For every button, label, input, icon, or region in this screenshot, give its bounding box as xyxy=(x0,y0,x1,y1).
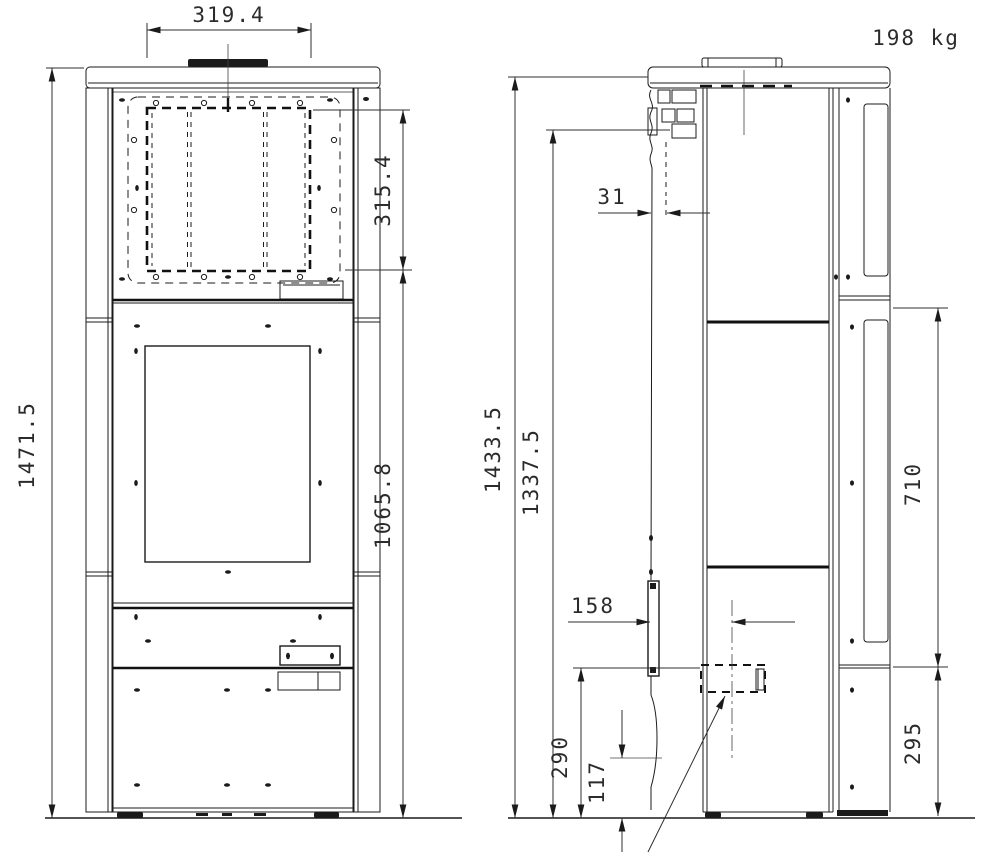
dim-side-window-height-label: 710 xyxy=(901,462,925,506)
dim-side-height-top-label: 1433.5 xyxy=(481,405,505,493)
dimension-front-upper-height: 1065.8 xyxy=(371,270,403,818)
dim-side-height-connection-label: 1337.5 xyxy=(519,428,543,516)
front-right-foot xyxy=(314,812,339,818)
dim-side-handle-distance-label: 158 xyxy=(571,594,615,618)
dim-side-outlet-height-label: 290 xyxy=(548,735,572,779)
front-shelf-band xyxy=(113,281,353,303)
side-connection-box xyxy=(648,90,696,218)
technical-drawing-page: 319.4 1471.5 315.4 1065.8 198 kg 31 1433… xyxy=(0,0,988,854)
side-front-foot xyxy=(806,812,823,818)
dimension-front-total-height: 1471.5 xyxy=(15,68,84,818)
dim-front-opening-width-label: 319.4 xyxy=(192,3,265,27)
dim-side-base-height-label: 295 xyxy=(901,721,925,765)
dimension-front-opening-width: 319.4 xyxy=(147,3,311,58)
air-intake-leader xyxy=(648,696,725,852)
dim-side-intake-height-label: 117 xyxy=(585,760,609,804)
dimension-side-handle-distance: 158 xyxy=(568,594,795,622)
front-top-plate xyxy=(86,67,380,88)
front-view xyxy=(86,44,380,818)
dimension-front-opening-height: 315.4 xyxy=(313,110,412,270)
front-upper-opening xyxy=(119,97,340,283)
side-rear-shield xyxy=(648,90,659,810)
dimension-side-window-height: 710 xyxy=(893,308,948,667)
weight-label: 198 kg xyxy=(872,26,960,50)
dimension-side-height-connection: 1337.5 xyxy=(519,130,670,818)
dim-front-upper-height-label: 1065.8 xyxy=(371,461,395,549)
dimension-side-base-height: 295 xyxy=(901,667,938,816)
side-front-pillar xyxy=(834,88,890,816)
side-view xyxy=(610,58,890,818)
dimension-side-flue-offset: 31 xyxy=(597,185,710,213)
front-door-glass xyxy=(145,346,310,562)
front-left-pillar xyxy=(86,88,112,812)
dimension-side-intake-height: 117 xyxy=(585,710,622,852)
side-air-intake-hidden xyxy=(610,600,765,758)
side-rear-handle xyxy=(648,581,659,676)
side-body xyxy=(703,88,833,818)
dim-front-opening-height-label: 315.4 xyxy=(371,153,395,226)
side-flue-cap xyxy=(702,58,782,67)
front-left-foot xyxy=(117,812,143,818)
dimension-side-outlet-height: 290 xyxy=(548,668,700,818)
front-bottom-panel xyxy=(86,688,380,818)
dim-side-flue-offset-label: 31 xyxy=(597,185,626,209)
front-latch-area xyxy=(113,614,353,690)
front-door xyxy=(113,324,353,608)
stove-technical-drawing: 319.4 1471.5 315.4 1065.8 198 kg 31 1433… xyxy=(0,0,988,854)
side-rear-foot xyxy=(705,812,721,818)
dim-front-total-height-label: 1471.5 xyxy=(15,401,39,489)
